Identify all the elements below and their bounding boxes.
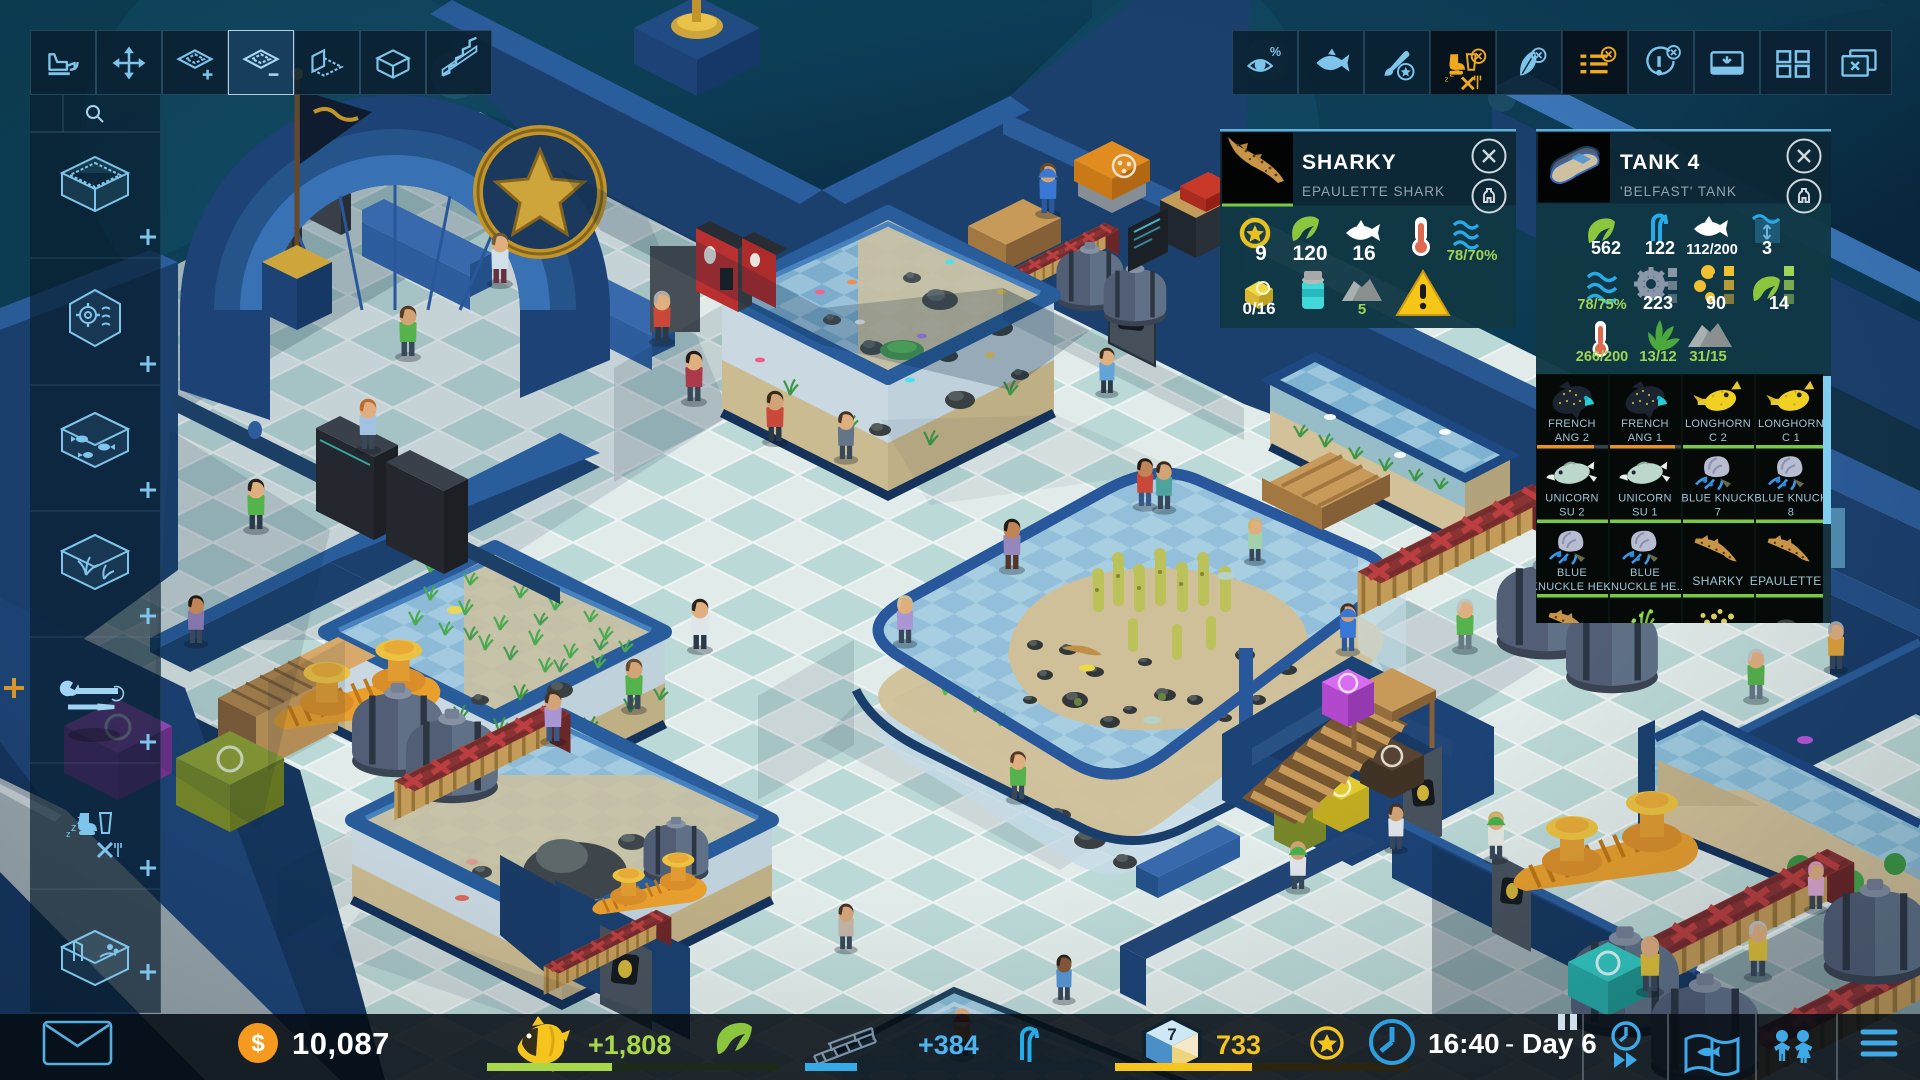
svg-text:SU 2: SU 2 [1559,507,1585,519]
svg-text:8: 8 [1788,507,1794,519]
svg-text:SHARKY: SHARKY [1692,574,1743,588]
svg-text:13/12: 13/12 [1639,348,1677,365]
svg-text:BLUE: BLUE [1630,567,1660,579]
svg-text:112/200: 112/200 [1686,242,1738,258]
svg-text:z: z [1454,62,1459,74]
svg-text:EPAULETTE SHARK: EPAULETTE SHARK [1302,184,1445,199]
svg-text:KNUCKLE HE...: KNUCKLE HE... [1536,581,1614,593]
svg-text:78/75%: 78/75% [1577,297,1626,313]
svg-text:16: 16 [1352,242,1375,265]
svg-text:BLUE KNUCK: BLUE KNUCK [1754,493,1828,505]
svg-text:3: 3 [1762,238,1772,258]
svg-text:LONGHORN: LONGHORN [1685,418,1751,430]
svg-text:+384: +384 [918,1030,979,1060]
svg-text:733: 733 [1216,1030,1261,1060]
svg-text:122: 122 [1645,238,1675,258]
svg-text:TANK 4: TANK 4 [1620,151,1700,174]
svg-text:ANG 1: ANG 1 [1628,432,1663,444]
svg-text:7: 7 [1715,507,1721,519]
svg-text:$: $ [251,1030,265,1057]
svg-text:FRENCH: FRENCH [1621,418,1669,430]
svg-text:16:40: 16:40 [1428,1028,1500,1059]
svg-text:9: 9 [1255,242,1267,265]
svg-text:C 2: C 2 [1709,432,1727,444]
svg-text:90: 90 [1706,293,1726,313]
svg-text:562: 562 [1591,238,1621,258]
svg-text:SU 1: SU 1 [1632,507,1658,519]
svg-text:14: 14 [1769,293,1789,313]
svg-text:10,087: 10,087 [292,1026,390,1061]
svg-text:LONGHORN: LONGHORN [1758,418,1824,430]
svg-text:KNUCKLE HE...: KNUCKLE HE... [1603,581,1686,593]
svg-text:z: z [77,812,84,827]
svg-text:FRENCH: FRENCH [1548,418,1596,430]
svg-text:BLUE KNUCK: BLUE KNUCK [1681,493,1755,505]
svg-text:ANG 2: ANG 2 [1555,432,1590,444]
svg-text:266/200: 266/200 [1576,349,1628,365]
svg-text:'BELFAST' TANK: 'BELFAST' TANK [1620,184,1737,199]
svg-text:UNICORN: UNICORN [1618,493,1671,505]
svg-text:SHARKY: SHARKY [1302,151,1397,174]
svg-text:BLUE: BLUE [1557,567,1587,579]
svg-text:223: 223 [1643,293,1673,313]
svg-text:Day 6: Day 6 [1522,1028,1597,1059]
svg-text:+1,808: +1,808 [588,1030,671,1060]
svg-text:-: - [1505,1028,1514,1059]
svg-text:UNICORN: UNICORN [1545,493,1598,505]
svg-text:z: z [71,822,77,834]
svg-text:7: 7 [1167,1025,1176,1044]
svg-text:%: % [1270,45,1281,59]
svg-text:0/16: 0/16 [1242,299,1275,318]
svg-text:78/70%: 78/70% [1447,247,1498,264]
svg-text:31/15: 31/15 [1689,348,1727,365]
svg-text:EPAULETTE 3: EPAULETTE 3 [1750,574,1831,588]
svg-text:120: 120 [1292,242,1327,265]
svg-text:5: 5 [1358,301,1366,318]
svg-text:z: z [1445,74,1449,83]
svg-text:C 1: C 1 [1782,432,1800,444]
